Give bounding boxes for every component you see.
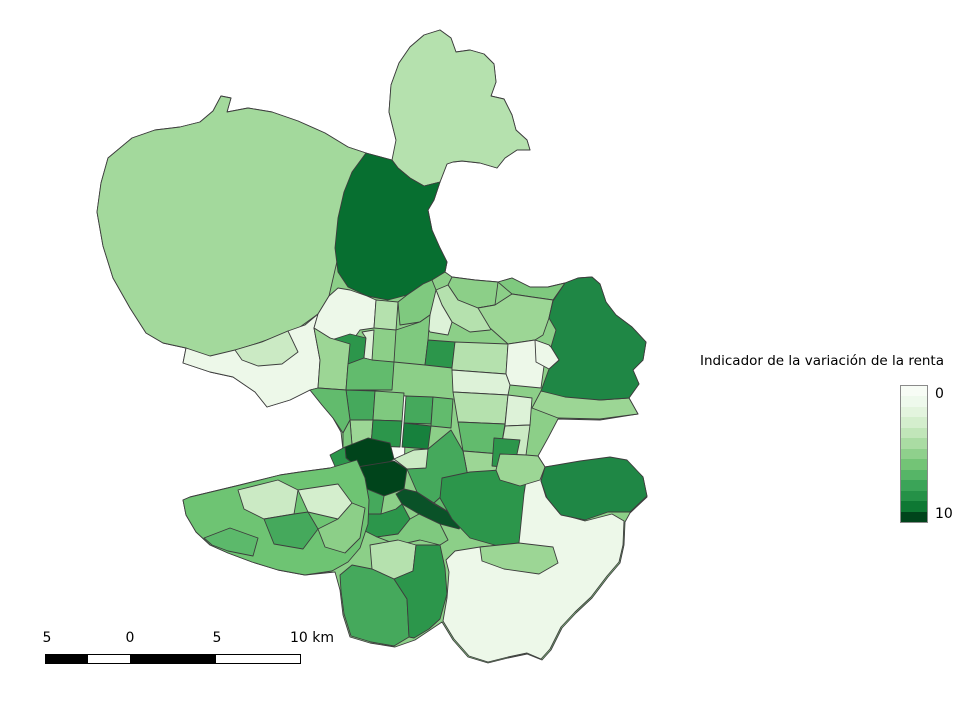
scalebar-segment xyxy=(130,654,216,664)
map-region-northcap xyxy=(389,30,530,186)
map-region-tetuan-row xyxy=(346,358,394,390)
legend-step xyxy=(901,428,927,438)
legend-bottom-tick: 10 xyxy=(935,507,953,521)
legend-top-tick: 0 xyxy=(935,387,944,401)
map-region-tetuan-c1 xyxy=(346,390,375,420)
legend-step xyxy=(901,470,927,480)
map-region-sanblas-pale xyxy=(505,395,532,426)
legend-step xyxy=(901,459,927,469)
scalebar-segment xyxy=(45,654,88,664)
map-region-canaveral xyxy=(541,457,647,520)
legend-step xyxy=(901,396,927,406)
map-region-pale-band-2 xyxy=(452,370,510,395)
map-region-moncloa xyxy=(310,388,350,433)
map-region-tetuan-c2 xyxy=(373,391,404,421)
map-region-chamberi-1 xyxy=(404,396,433,424)
legend-step xyxy=(901,438,927,448)
scalebar-segment xyxy=(87,654,131,664)
scalebar-label: 5 xyxy=(213,630,222,646)
map-region-salamanca-1 xyxy=(431,397,453,428)
legend-colorbar xyxy=(900,385,928,523)
legend-step xyxy=(901,407,927,417)
legend-title: Indicador de la variación de la renta xyxy=(620,352,944,370)
scalebar-label: 10 km xyxy=(290,630,334,646)
legend-step xyxy=(901,386,927,396)
scalebar-segment xyxy=(215,654,301,664)
map-region-pale-right xyxy=(374,300,398,330)
legend-step xyxy=(901,512,927,522)
legend-step xyxy=(901,501,927,511)
map-region-prosperidad xyxy=(452,342,508,374)
map-region-clineal-1 xyxy=(453,392,508,424)
legend-step xyxy=(901,449,927,459)
scalebar xyxy=(45,654,301,664)
map-region-barajas xyxy=(541,277,646,400)
choropleth-figure: Indicador de la variación de la renta 0 … xyxy=(0,0,980,716)
map-region-chamartin-dark xyxy=(425,340,455,368)
map-region-chamberi-2 xyxy=(402,423,431,449)
legend-step xyxy=(901,491,927,501)
legend-step xyxy=(901,417,927,427)
scalebar-label: 0 xyxy=(126,630,135,646)
legend-step xyxy=(901,480,927,490)
scalebar-label: 5 xyxy=(43,630,52,646)
